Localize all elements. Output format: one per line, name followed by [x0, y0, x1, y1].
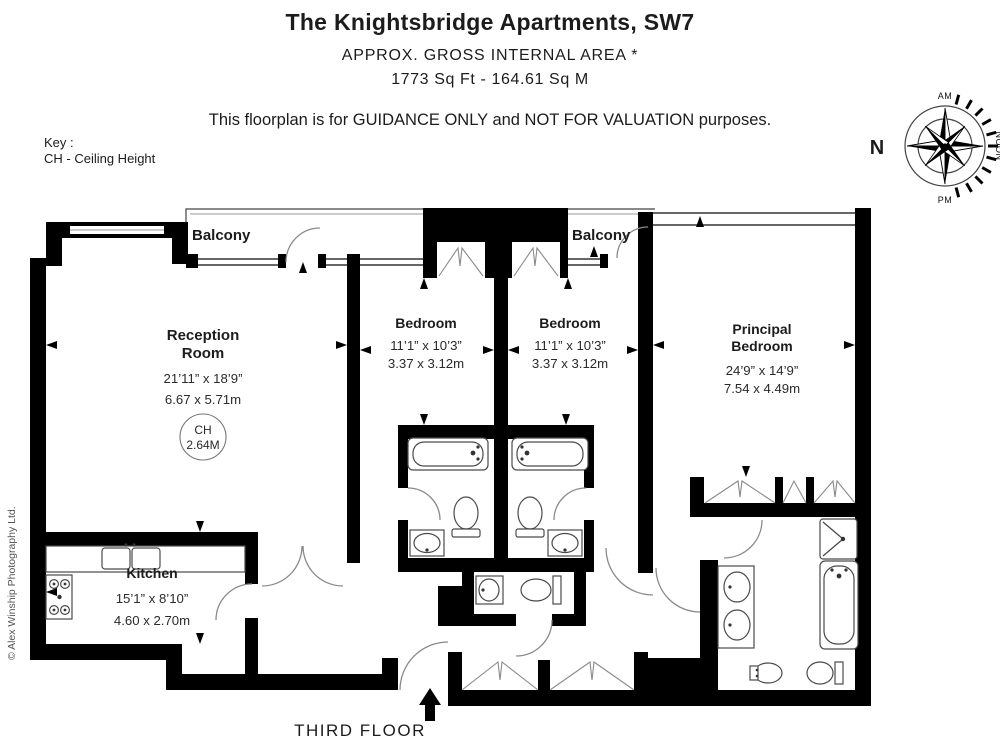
- room-label-kitchen: Kitchen: [126, 565, 177, 581]
- floor-label: THIRD FLOOR: [294, 721, 426, 740]
- room-dims-metric-bedroom-2: 3.37 x 3.12m: [532, 356, 608, 371]
- toilet-guest-wc: [521, 576, 561, 604]
- room-label-bedroom-2: Bedroom: [539, 315, 600, 331]
- room-dims-metric-kitchen: 4.60 x 2.70m: [114, 613, 190, 628]
- room-label-balcony-left: Balcony: [192, 227, 251, 244]
- toilet-ensuite-1: [452, 497, 480, 537]
- sink-ensuite-1: [410, 530, 444, 556]
- compass-am-label: AM: [938, 91, 953, 101]
- room-label-principal-line2: Bedroom: [731, 338, 792, 354]
- floorplan-canvas: The Knightsbridge Apartments, SW7 APPROX…: [0, 0, 1000, 742]
- sink-guest-wc: [476, 576, 503, 604]
- photography-credit: © Alex Winship Photography Ltd.: [6, 506, 18, 660]
- compass-pm-label: PM: [938, 195, 953, 205]
- room-label-reception-line2: Room: [182, 345, 225, 362]
- compass-north-label: N: [870, 137, 884, 159]
- bathtub-ensuite-1: [408, 438, 488, 470]
- bathtub-ensuite-2: [512, 438, 588, 470]
- room-dims-metric-bedroom-1: 3.37 x 3.12m: [388, 356, 464, 371]
- toilet-ensuite-2: [516, 497, 544, 537]
- sink-counter-principal: [718, 566, 754, 648]
- bidet-principal: [750, 663, 782, 683]
- shower-principal: [820, 519, 857, 559]
- floorplan-page: { "header": { "title": "The Knightsbridg…: [0, 0, 1000, 742]
- compass-noon-label: NOON: [994, 132, 1000, 161]
- room-label-bedroom-1: Bedroom: [395, 315, 456, 331]
- room-dims-imperial-kitchen: 15’1” x 8’10”: [116, 591, 189, 606]
- area-label: APPROX. GROSS INTERNAL AREA *: [342, 47, 638, 64]
- room-dims-imperial-bedroom-1: 11’1” x 10’3”: [390, 338, 462, 353]
- entrance-arrow: [419, 688, 441, 721]
- room-dims-imperial-bedroom-2: 11’1” x 10’3”: [534, 338, 606, 353]
- room-dims-metric-reception: 6.67 x 5.71m: [165, 392, 241, 407]
- room-dims-metric-principal: 7.54 x 4.49m: [724, 381, 800, 396]
- page-title: The Knightsbridge Apartments, SW7: [285, 9, 694, 35]
- kitchen-hob: [46, 575, 72, 619]
- toilet-principal: [807, 662, 843, 684]
- key-entry: CH - Ceiling Height: [44, 151, 156, 166]
- disclaimer: This floorplan is for GUIDANCE ONLY and …: [209, 111, 771, 129]
- key-label: Key :: [44, 135, 74, 150]
- compass-rose: N AM NOON PM: [870, 91, 1000, 205]
- area-value: 1773 Sq Ft - 164.61 Sq M: [391, 71, 589, 88]
- room-label-reception-line1: Reception: [167, 327, 240, 344]
- ceiling-height-value: 2.64M: [186, 438, 219, 452]
- ceiling-height-circle: [180, 414, 226, 460]
- room-label-principal-line1: Principal: [732, 321, 791, 337]
- bathtub-principal: [820, 561, 858, 649]
- room-dims-imperial-reception: 21’11” x 18’9”: [164, 371, 243, 386]
- room-dims-imperial-principal: 24’9” x 14’9”: [726, 363, 799, 378]
- ceiling-height-label: CH: [194, 423, 211, 437]
- sink-ensuite-2: [548, 530, 582, 556]
- room-label-balcony-right: Balcony: [572, 227, 631, 244]
